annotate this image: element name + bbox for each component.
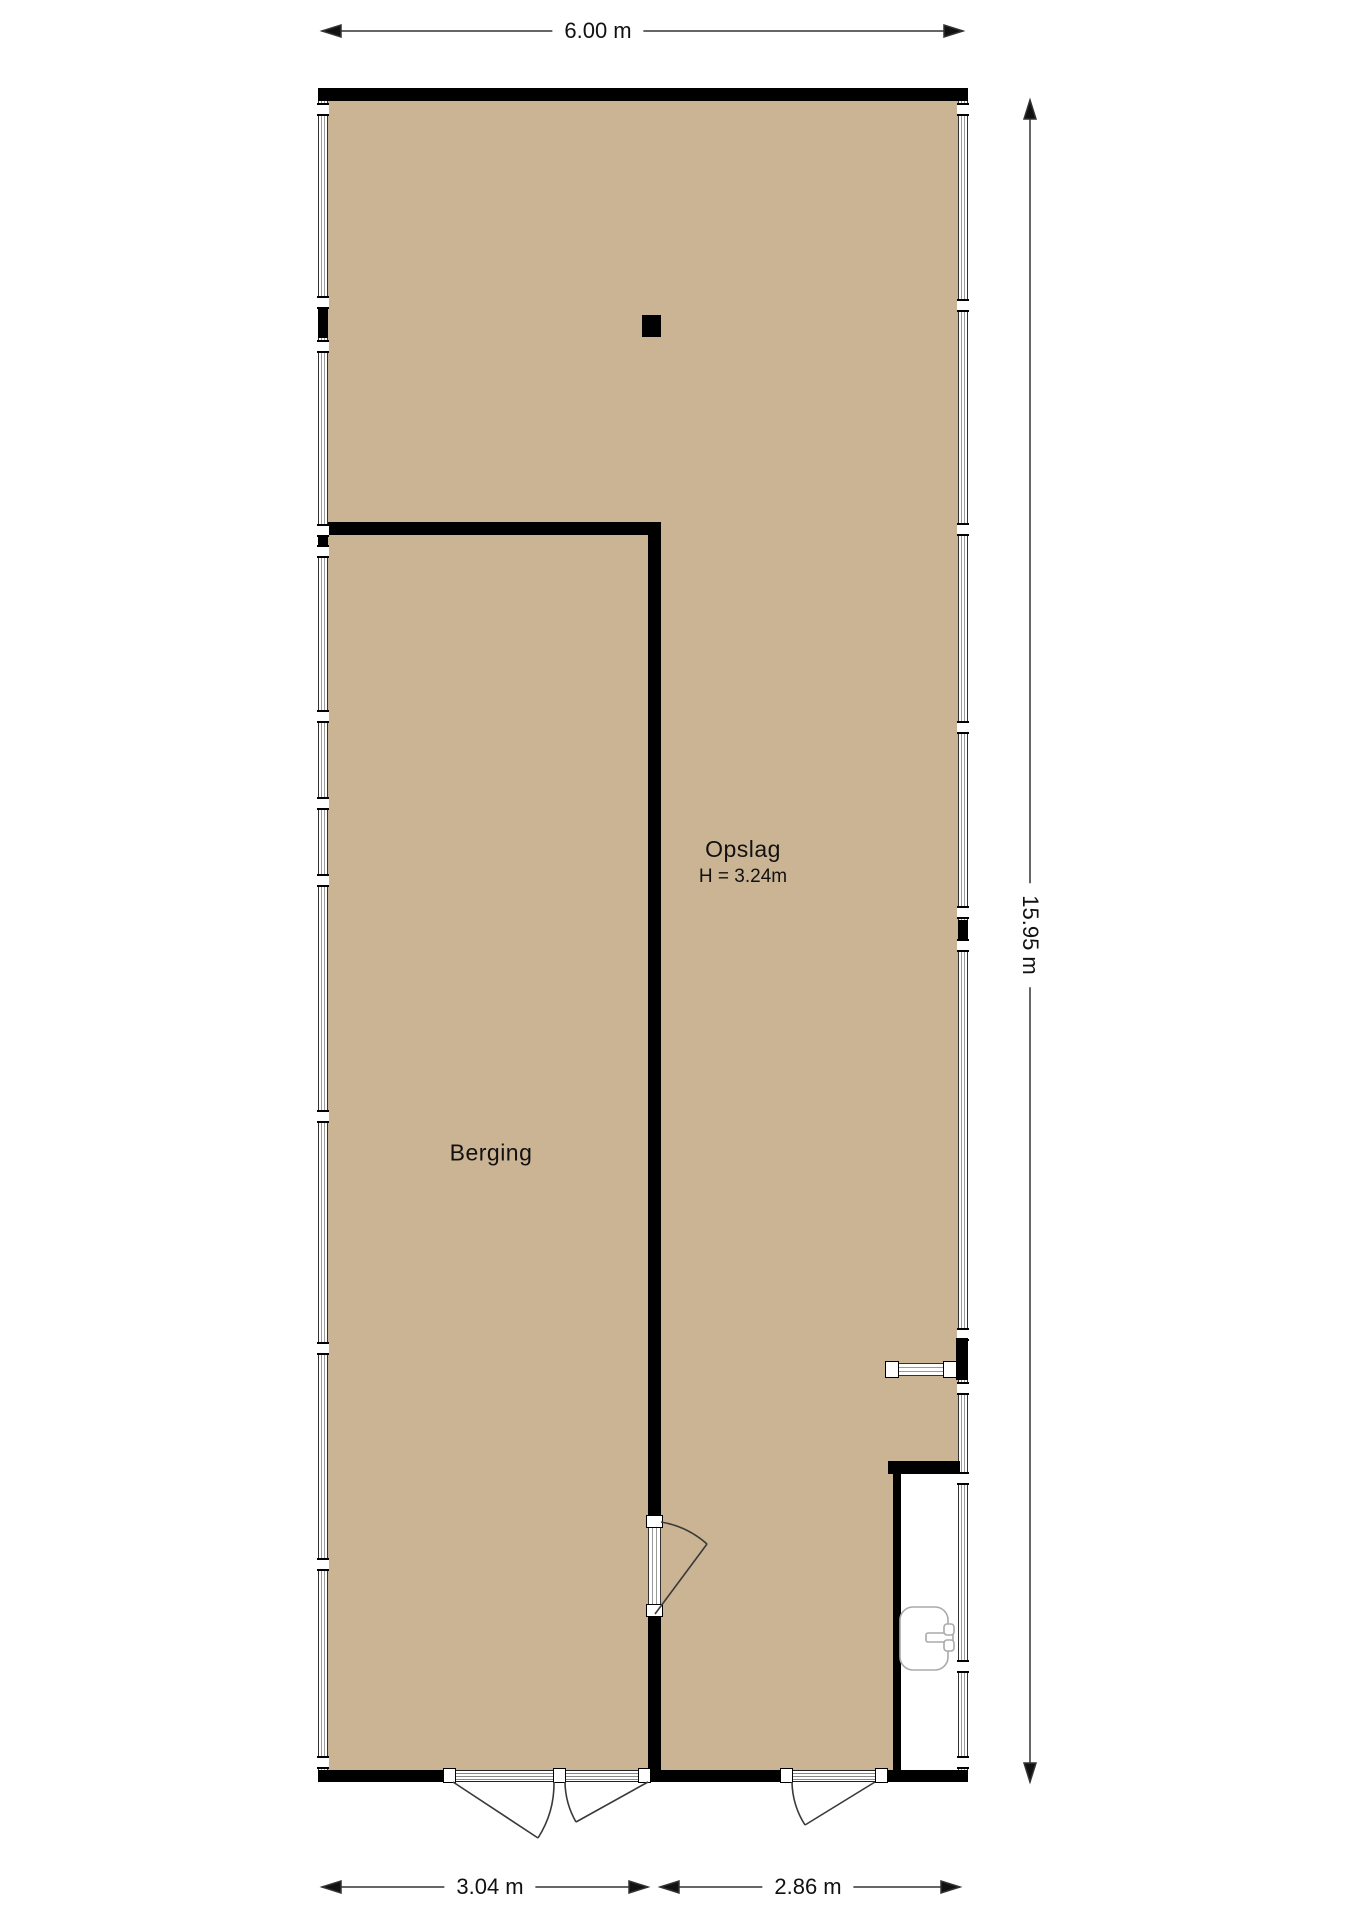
room-label-berging: Berging: [450, 1140, 533, 1167]
floorplan-canvas: Opslag H = 3.24m Berging 6.00 m 15.95 m …: [0, 0, 1358, 1920]
floorplan-overlay: [0, 0, 1358, 1920]
sink-icon: [900, 1607, 954, 1670]
single-door-swing: [792, 1782, 875, 1825]
double-door-swing: [453, 1782, 648, 1838]
room-name-berging: Berging: [450, 1140, 533, 1167]
room-name-opslag: Opslag: [699, 836, 787, 863]
dimension-label-right: 15.95 m: [1015, 883, 1045, 987]
dimension-label-top: 6.00 m: [552, 16, 643, 46]
room-label-opslag: Opslag H = 3.24m: [699, 836, 787, 888]
dimension-label-bottom-right: 2.86 m: [762, 1872, 853, 1902]
dimension-label-bottom-left: 3.04 m: [444, 1872, 535, 1902]
room-height-opslag: H = 3.24m: [699, 866, 787, 888]
interior-door-swing: [655, 1522, 707, 1614]
